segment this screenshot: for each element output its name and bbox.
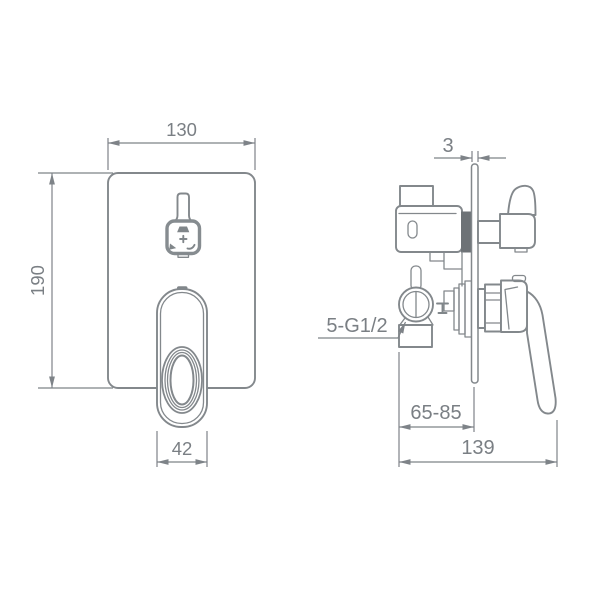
lever-handle-side: [478, 276, 556, 414]
dim-handle-width-label: 42: [172, 438, 193, 459]
dim-install-depth-label: 65-85: [410, 402, 461, 424]
handle-ring-band-side: [478, 289, 485, 328]
dim-height-label: 190: [27, 265, 48, 296]
diverter-stem: [174, 194, 193, 223]
diverter-blade-side: [508, 186, 536, 215]
dim-plate-thickness-label: 3: [442, 135, 453, 157]
diverter-knob-side: [500, 214, 535, 248]
body-pin: [411, 266, 421, 290]
side-view: [396, 164, 556, 414]
handle-lever-side: [527, 292, 556, 414]
dimension-height: 190: [27, 173, 113, 388]
connection-label: 5-G1/2: [326, 315, 387, 337]
lever-handle-front: [157, 286, 207, 427]
dimension-handle-width: 42: [157, 431, 207, 467]
diverter-tab-side: [515, 248, 527, 252]
wall-plate-side: [472, 164, 479, 383]
body-top-block: [400, 186, 433, 207]
body-mid-step: [444, 291, 454, 311]
dimension-width: 130: [108, 119, 255, 170]
connection-callout: 5-G1/2: [318, 315, 406, 338]
technical-drawing-canvas: 130 190 42: [0, 0, 600, 600]
dimension-plate-thickness: 3: [434, 135, 506, 162]
dim-total-depth-label: 139: [461, 437, 494, 459]
body-lower-block: [399, 325, 432, 347]
plate-connector-dark: [462, 212, 473, 252]
body-step-lines: [430, 252, 462, 286]
valve-body-inwall: [396, 186, 472, 347]
cartridge-band-1: [454, 288, 459, 330]
cartridge-band-3: [465, 281, 472, 337]
handle-adapter-side: [485, 285, 501, 332]
front-view: [108, 173, 255, 427]
diverter-stem-side: [478, 221, 501, 243]
diverter-button-side: [478, 186, 536, 252]
handle-outer: [157, 289, 207, 427]
dim-width-label: 130: [166, 119, 197, 140]
cartridge-band-2: [459, 284, 465, 334]
mixer-drawing-svg: 130 190 42: [0, 0, 600, 600]
